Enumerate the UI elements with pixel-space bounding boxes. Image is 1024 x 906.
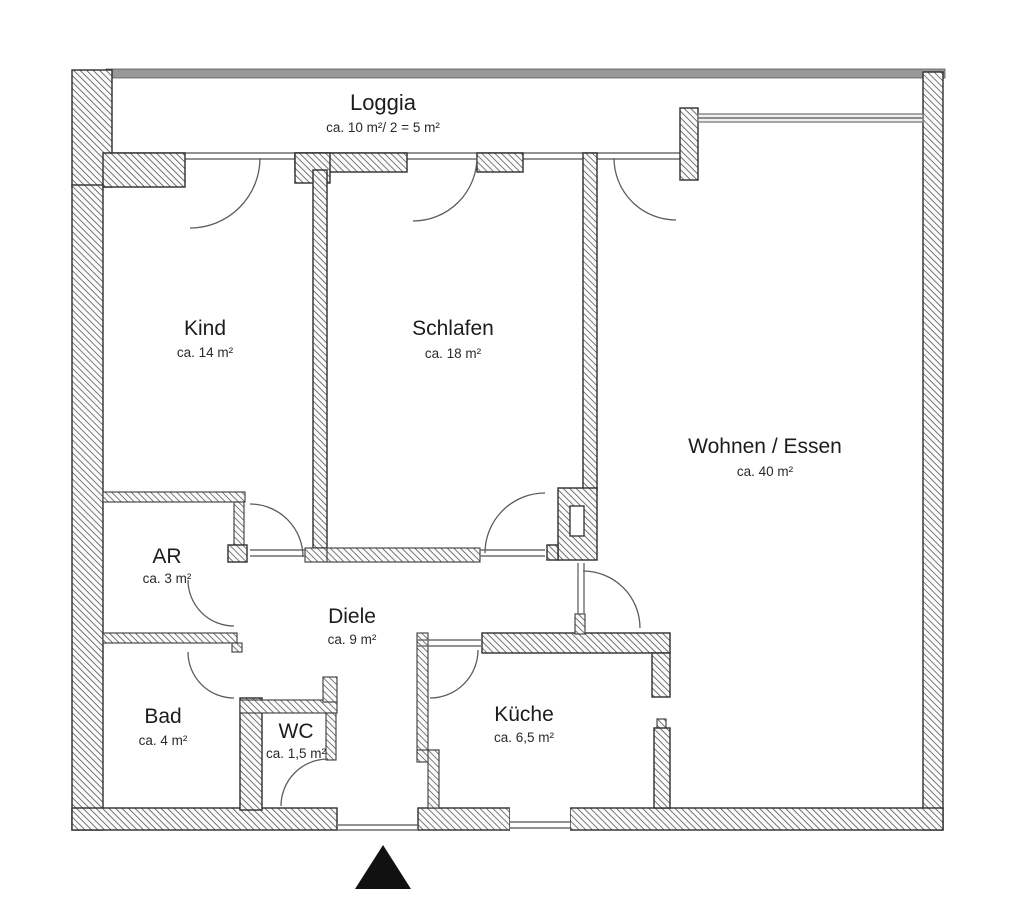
room-label-wc: WC xyxy=(279,720,314,743)
room-label-kind: Kind xyxy=(184,317,226,340)
bottom-outer-wall-right xyxy=(570,808,943,830)
room-label-kueche: Küche xyxy=(494,703,554,726)
room-area-ar: ca. 3 m² xyxy=(143,571,192,586)
floorplan-page: Loggia ca. 10 m²/ 2 = 5 m² Kind ca. 14 m… xyxy=(0,0,1024,906)
wohnen-door-pillar xyxy=(575,614,585,634)
ar-bad-wall xyxy=(103,633,237,643)
wc-door-arc xyxy=(281,759,328,806)
ar-wall-pillar xyxy=(228,545,247,562)
bottom-outer-wall-mid xyxy=(418,808,510,830)
room-area-loggia: ca. 10 m²/ 2 = 5 m² xyxy=(326,120,440,135)
wc-corridor-stub xyxy=(323,677,337,702)
entrance-direction-marker-icon xyxy=(355,845,411,889)
wc-right-wall xyxy=(326,713,336,760)
wohnen-loggia-door-arc xyxy=(614,158,676,220)
room-labels: Loggia ca. 10 m²/ 2 = 5 m² Kind ca. 14 m… xyxy=(139,90,842,761)
bad-right-wall-stub xyxy=(232,643,242,652)
loggia-wall-block-right xyxy=(477,153,523,172)
kueche-right-wall-lower xyxy=(654,728,670,808)
kueche-left-wall-upper xyxy=(417,633,428,760)
ar-door-arc xyxy=(188,580,234,626)
kueche-top-wall xyxy=(482,633,670,653)
diele-top-wall-seg2 xyxy=(327,548,480,562)
schlafen-balcony-door-arc xyxy=(413,157,477,221)
kueche-door-arc xyxy=(430,650,478,698)
right-outer-wall xyxy=(923,72,943,830)
shaft-duct-opening xyxy=(570,506,584,536)
ar-top-wall xyxy=(103,492,245,502)
shaft-foot xyxy=(547,545,558,560)
kueche-left-wall-lower xyxy=(428,750,439,808)
loggia-end-pillar xyxy=(680,108,698,180)
floorplan-svg: Loggia ca. 10 m²/ 2 = 5 m² Kind ca. 14 m… xyxy=(0,0,1024,906)
room-area-kueche: ca. 6,5 m² xyxy=(494,730,555,745)
bad-wc-divider xyxy=(240,698,262,810)
room-area-diele: ca. 9 m² xyxy=(328,632,377,647)
room-label-schlafen: Schlafen xyxy=(412,317,494,340)
room-label-loggia: Loggia xyxy=(350,90,417,115)
room-label-diele: Diele xyxy=(328,605,376,628)
room-area-wohnen-essen: ca. 40 m² xyxy=(737,464,794,479)
kind-balcony-door-arc xyxy=(190,158,260,228)
bottom-outer-wall-left xyxy=(72,808,337,830)
room-area-wc: ca. 1,5 m² xyxy=(266,746,327,761)
diele-top-wall-seg1 xyxy=(305,548,327,562)
schlafen-room-door-arc xyxy=(485,493,545,553)
bad-door-arc xyxy=(188,652,234,698)
room-area-schlafen: ca. 18 m² xyxy=(425,346,482,361)
top-parapet-wall xyxy=(106,69,945,78)
kueche-right-pillar xyxy=(652,653,670,697)
room-label-wohnen-essen: Wohnen / Essen xyxy=(688,435,842,458)
wohnen-room-door-arc xyxy=(583,571,640,628)
left-outer-wall xyxy=(72,185,103,830)
room-area-kind: ca. 14 m² xyxy=(177,345,234,360)
ar-right-wall xyxy=(234,502,244,545)
wall-schlafen-wohnen xyxy=(583,153,597,490)
loggia-wall-block-left xyxy=(103,153,185,187)
kind-room-door-arc xyxy=(250,504,303,557)
room-label-ar: AR xyxy=(152,545,181,568)
room-area-bad: ca. 4 m² xyxy=(139,733,188,748)
wall-kind-schlafen xyxy=(313,170,327,548)
room-label-bad: Bad xyxy=(144,705,181,728)
